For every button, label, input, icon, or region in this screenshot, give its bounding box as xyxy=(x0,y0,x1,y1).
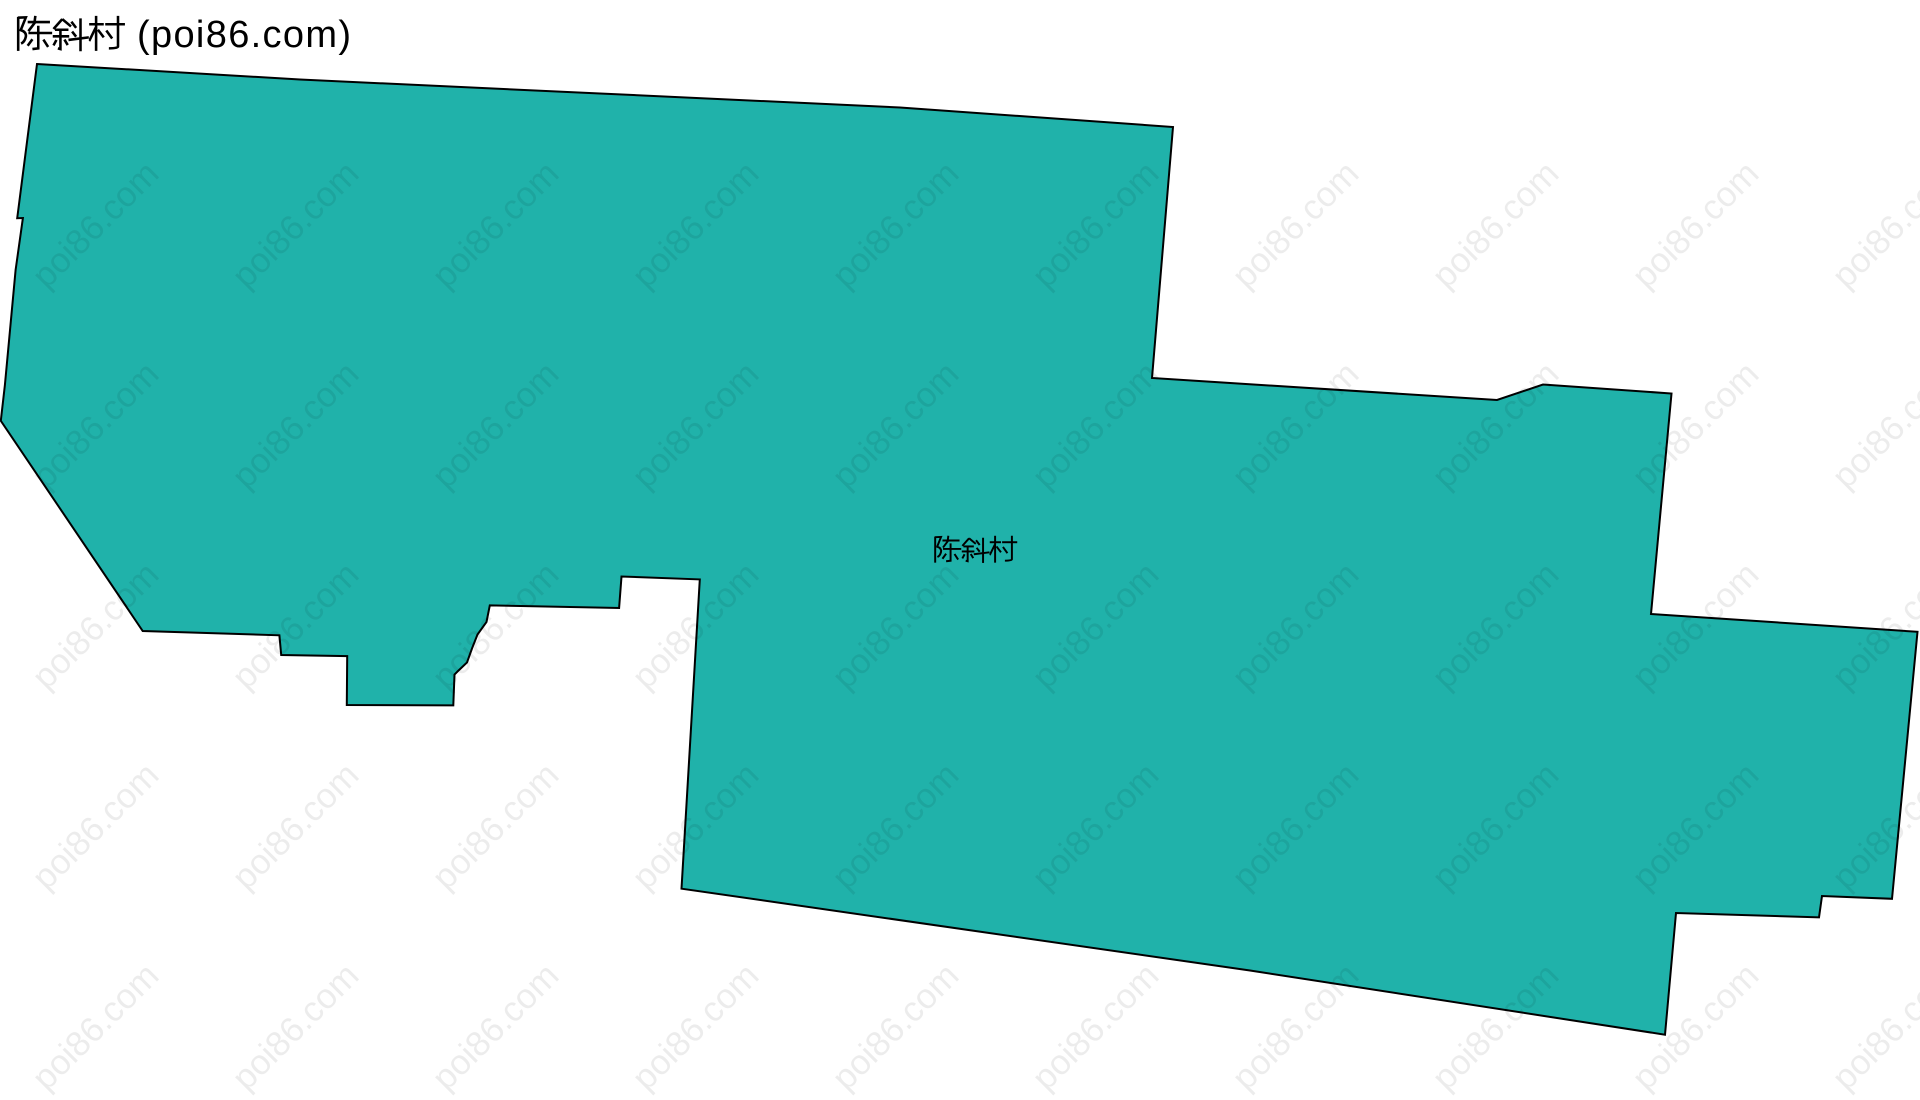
svg-text:poi86.com: poi86.com xyxy=(425,956,567,1098)
svg-text:poi86.com: poi86.com xyxy=(225,755,367,897)
svg-text:poi86.com: poi86.com xyxy=(225,956,367,1098)
svg-text:poi86.com: poi86.com xyxy=(25,755,167,897)
svg-text:poi86.com: poi86.com xyxy=(425,755,567,897)
svg-text:poi86.com: poi86.com xyxy=(1825,956,1920,1098)
svg-text:poi86.com: poi86.com xyxy=(625,956,767,1098)
svg-text:poi86.com: poi86.com xyxy=(1825,354,1920,496)
svg-text:poi86.com: poi86.com xyxy=(825,956,967,1098)
svg-text:(poi86.com): (poi86.com) xyxy=(137,14,351,56)
svg-text:poi86.com: poi86.com xyxy=(1425,154,1567,296)
svg-text:poi86.com: poi86.com xyxy=(1225,154,1367,296)
svg-text:poi86.com: poi86.com xyxy=(1025,956,1167,1098)
svg-text:poi86.com: poi86.com xyxy=(1625,154,1767,296)
svg-text:poi86.com: poi86.com xyxy=(25,956,167,1098)
svg-text:poi86.com: poi86.com xyxy=(1825,154,1920,296)
